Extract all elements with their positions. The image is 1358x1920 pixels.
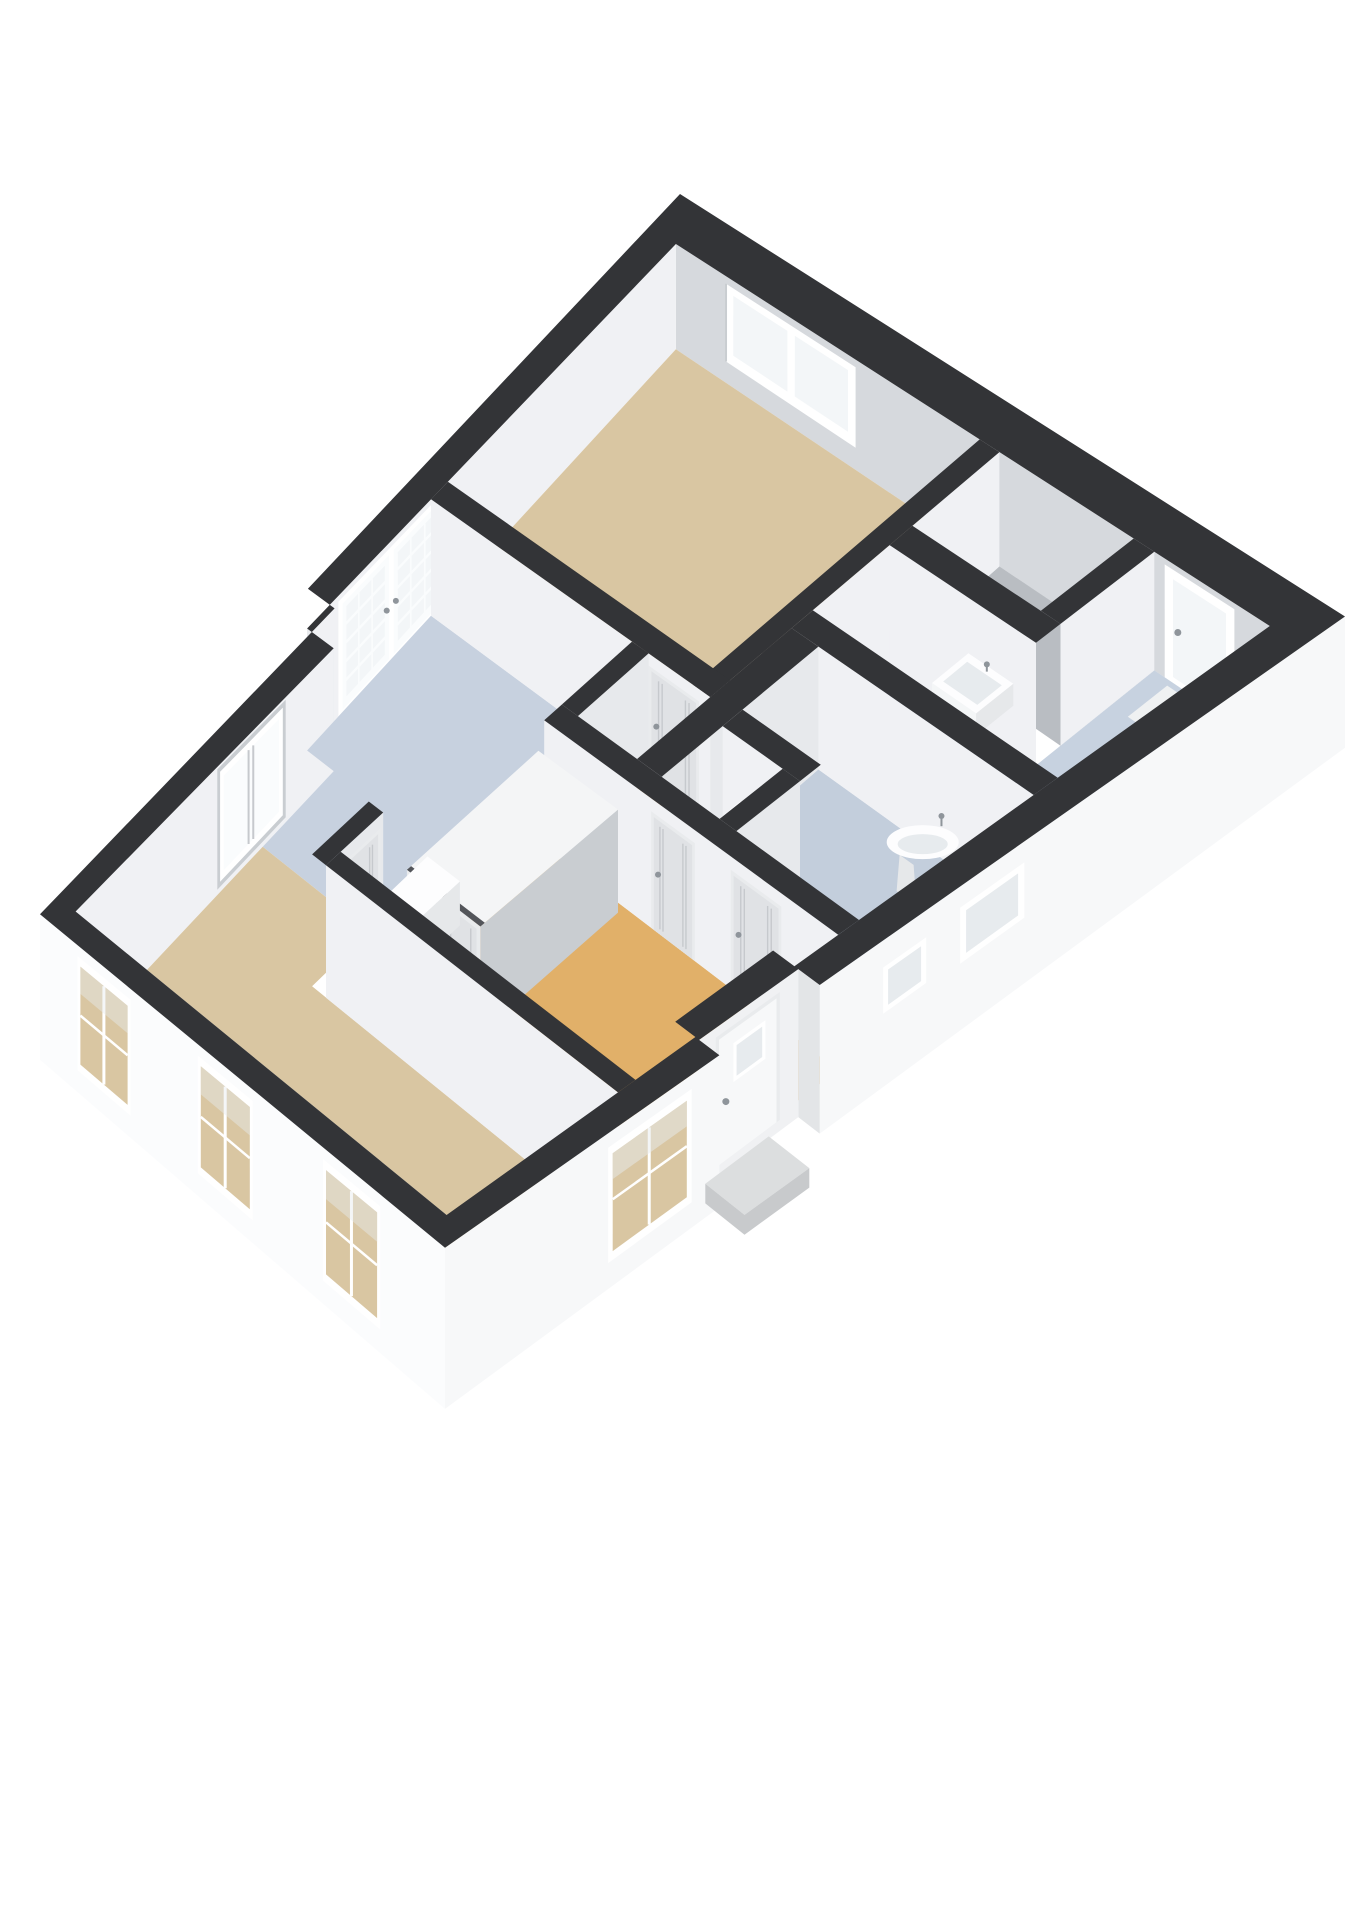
- entrance-recess-side: [798, 969, 819, 1134]
- french-door-handle-left: [393, 598, 399, 604]
- bathroom-door-handle: [736, 932, 742, 938]
- floorplan-3d-render: [0, 0, 1358, 1920]
- back-door-handle: [1174, 629, 1181, 636]
- front-door-handle: [722, 1098, 729, 1105]
- bedroom-door-handle: [653, 724, 659, 730]
- wc-door-handle: [655, 872, 661, 878]
- french-door-handle-right: [384, 608, 390, 614]
- floorplan-page: [0, 0, 1358, 1920]
- pedestal-sink-bowl: [898, 834, 948, 854]
